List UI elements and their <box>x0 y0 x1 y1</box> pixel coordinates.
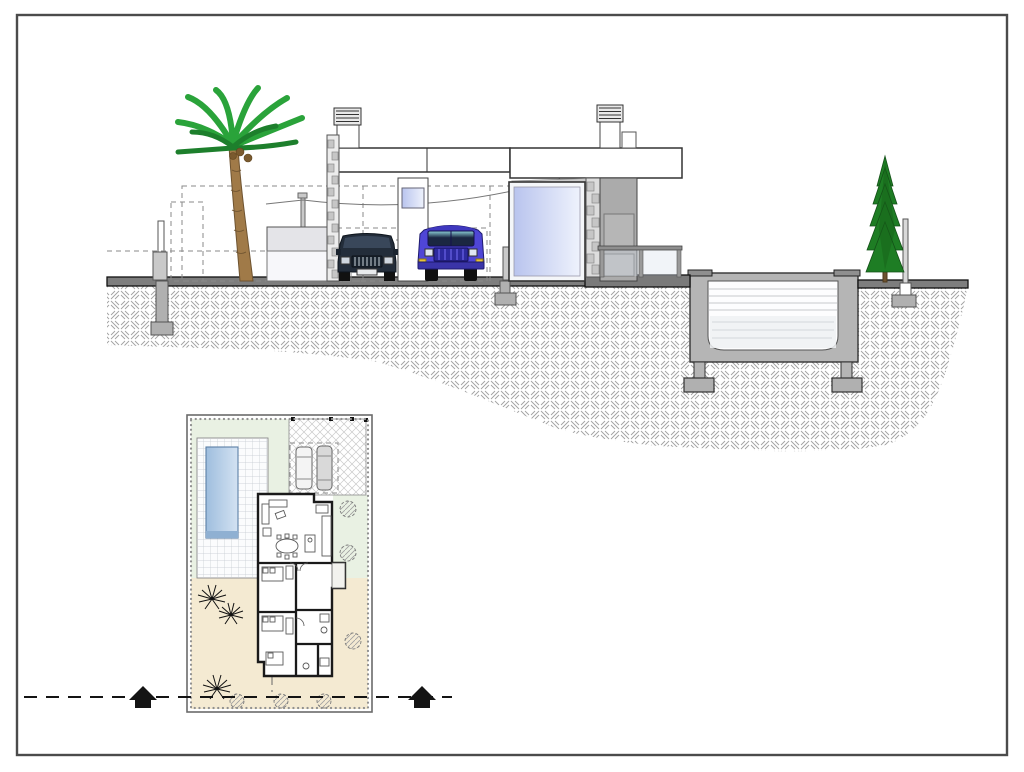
terrace-railing <box>598 246 682 277</box>
low-garden-wall <box>267 227 330 281</box>
flue-block <box>622 132 636 148</box>
terrace-step <box>332 563 345 588</box>
drawing-sheet <box>0 0 1024 772</box>
pool-coping <box>834 270 860 276</box>
drawing-canvas <box>0 0 1024 772</box>
house-floor-plan <box>258 494 345 676</box>
stone-clad-pier <box>327 135 339 281</box>
swimming-pool-plan <box>206 447 238 538</box>
flat-roof-band-left <box>330 148 510 172</box>
sedan-headlight <box>341 257 350 264</box>
pool-footing <box>684 378 714 392</box>
site-plan <box>187 415 372 712</box>
sedan-car <box>336 234 398 282</box>
sedan-headlight <box>384 257 393 264</box>
large-glass-window <box>509 182 585 281</box>
flat-roof-band-right <box>510 148 682 178</box>
pool-footing <box>832 378 862 392</box>
suv-headlight <box>425 249 433 256</box>
pool-coping <box>688 270 712 276</box>
stone-strip <box>586 178 600 277</box>
suv-headlight <box>469 249 477 256</box>
license-plate <box>357 269 377 275</box>
